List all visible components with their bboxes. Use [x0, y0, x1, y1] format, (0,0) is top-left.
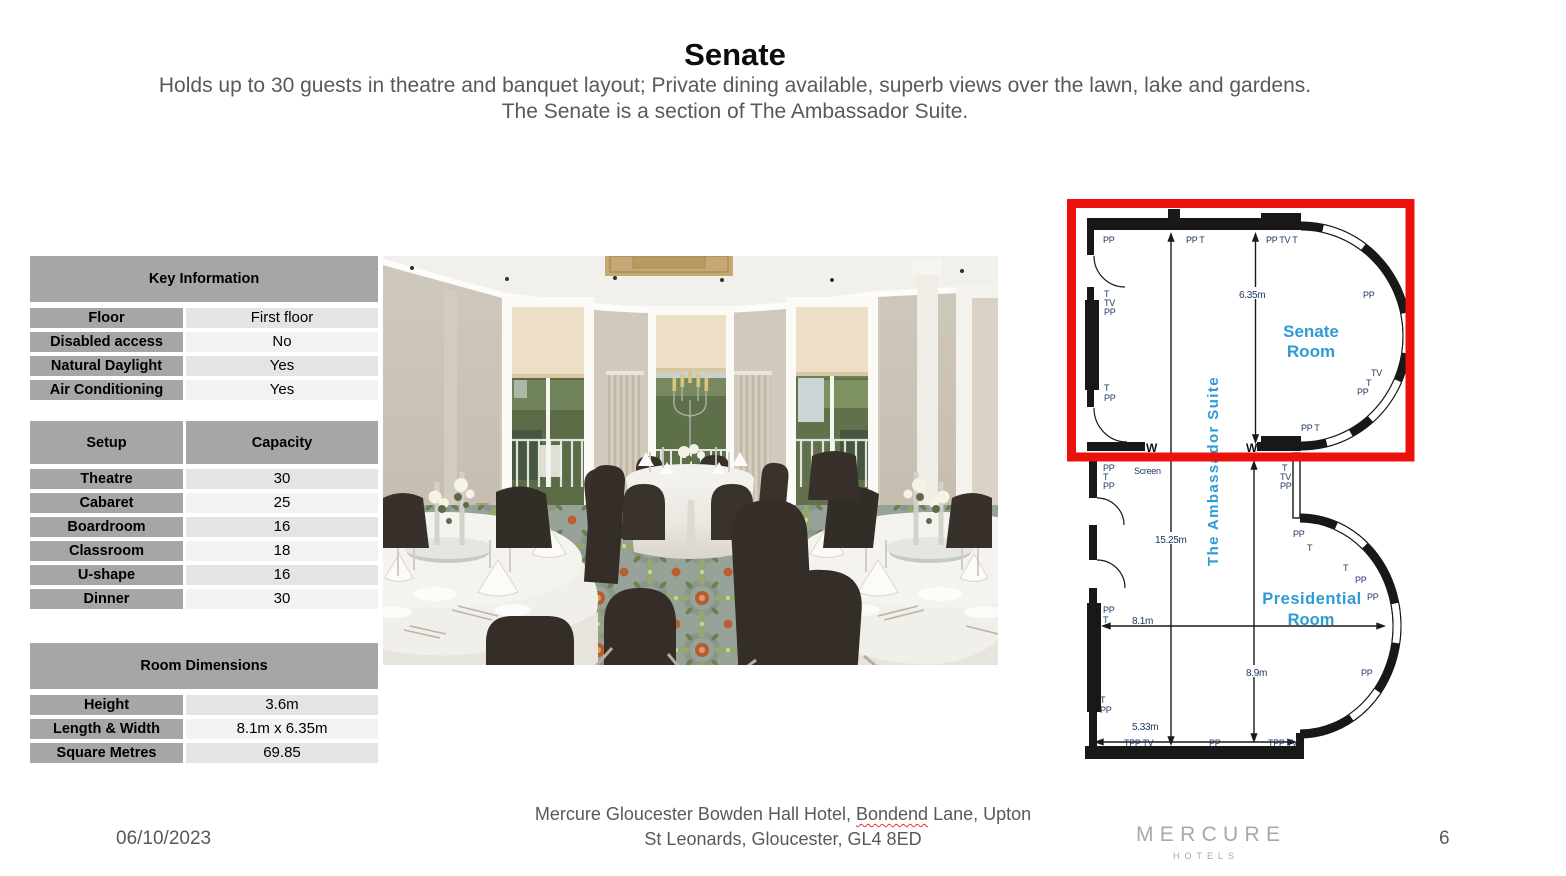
svg-text:6.35m: 6.35m [1239, 290, 1265, 301]
svg-text:PP TV T: PP TV T [1266, 235, 1298, 245]
svg-text:PP: PP [1209, 738, 1221, 748]
svg-text:PP: PP [1104, 307, 1116, 317]
svg-text:T: T [1343, 563, 1349, 573]
svg-text:PP: PP [1357, 387, 1369, 397]
svg-text:Room: Room [1288, 611, 1335, 629]
svg-text:15.25m: 15.25m [1155, 535, 1187, 546]
svg-text:TPP TV: TPP TV [1268, 738, 1298, 748]
svg-text:PP: PP [1361, 668, 1373, 678]
svg-text:PP T: PP T [1301, 423, 1320, 433]
svg-text:PP: PP [1100, 705, 1112, 715]
svg-text:PP: PP [1103, 235, 1115, 245]
svg-text:PP: PP [1280, 481, 1292, 491]
svg-text:Presidential: Presidential [1262, 590, 1362, 608]
svg-text:The Ambassador Suite: The Ambassador Suite [1205, 376, 1222, 566]
svg-text:5.33m: 5.33m [1132, 722, 1158, 733]
svg-text:T: T [1307, 543, 1313, 553]
svg-text:Room: Room [1287, 342, 1335, 361]
svg-text:8.1m: 8.1m [1132, 616, 1153, 627]
svg-text:PP: PP [1355, 575, 1367, 585]
svg-text:PP: PP [1103, 481, 1115, 491]
svg-text:Senate: Senate [1283, 322, 1339, 341]
svg-text:PP: PP [1104, 393, 1116, 403]
svg-text:PP: PP [1293, 529, 1305, 539]
svg-text:PP: PP [1367, 592, 1379, 602]
svg-text:T: T [1104, 383, 1110, 393]
svg-text:PP T: PP T [1186, 235, 1205, 245]
svg-text:TV: TV [1371, 368, 1382, 378]
svg-text:PP: PP [1363, 290, 1375, 300]
svg-text:TPP TV: TPP TV [1124, 738, 1154, 748]
svg-text:T: T [1100, 695, 1106, 705]
svg-text:Screen: Screen [1134, 466, 1161, 476]
svg-text:PP: PP [1103, 605, 1115, 615]
svg-text:T: T [1103, 615, 1109, 625]
svg-text:8.9m: 8.9m [1246, 668, 1267, 679]
